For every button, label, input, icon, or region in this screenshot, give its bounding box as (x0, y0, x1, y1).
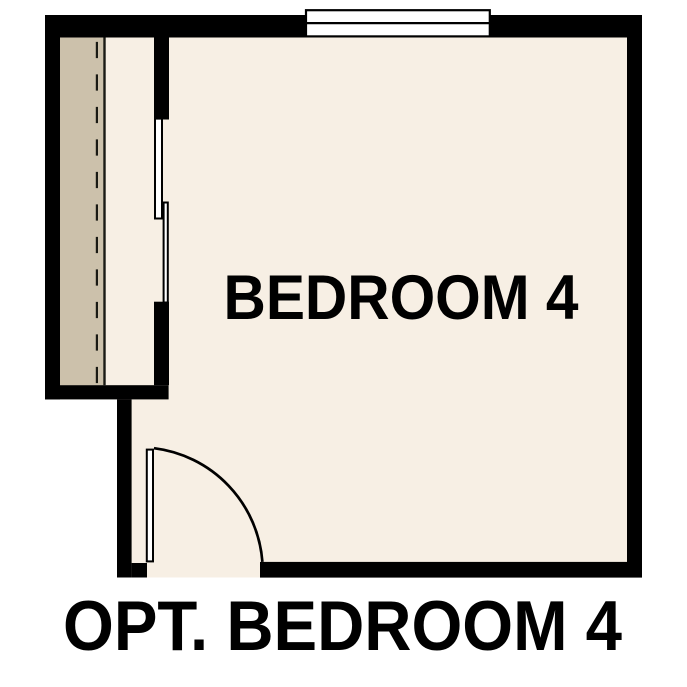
svg-text:BEDROOM 4: BEDROOM 4 (224, 263, 579, 333)
svg-text:OPT. BEDROOM 4: OPT. BEDROOM 4 (63, 586, 622, 665)
